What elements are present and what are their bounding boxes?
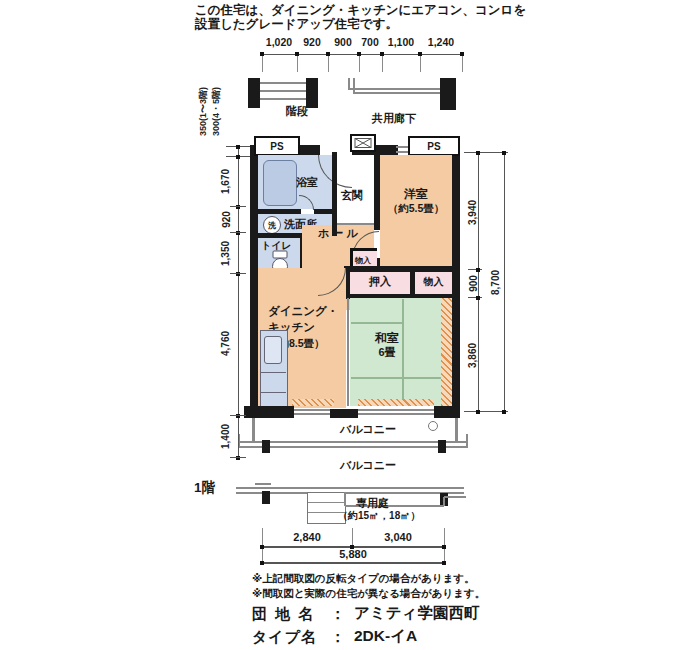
stair-line: [260, 90, 306, 92]
header-line1: この住宅は、ダイニング・キッチンにエアコン、コンロを: [195, 3, 526, 17]
dim-tick: [476, 410, 480, 414]
dk-label-line1: ダイニング・: [268, 303, 338, 319]
ground-line: [236, 492, 464, 494]
note-2: ※間取図と実際の住宅が異なる場合があります。: [252, 587, 485, 599]
ps-box-right: PS: [408, 136, 460, 156]
dim-ext-line: [297, 56, 298, 72]
washitsu-label-group: 和室 6畳: [364, 332, 410, 358]
dim-tick: [502, 151, 506, 155]
dim-top-5: 1,100: [381, 36, 421, 48]
garden-line: [443, 497, 445, 506]
washitsu-label: 和室: [375, 332, 399, 346]
dim-tick: [442, 561, 446, 565]
entrance-label: 玄関: [341, 189, 363, 202]
dk-washitsu-divider: [347, 298, 349, 406]
dim-left-upper-a: 350(1〜3階): [197, 80, 211, 142]
balcony-1f-label: バルコニー: [340, 459, 396, 472]
window-line: [294, 413, 330, 415]
bathtub-icon: [263, 160, 297, 206]
dim-tick: [502, 410, 506, 414]
dim-stub: [230, 232, 246, 233]
dim-chain-line: [238, 147, 239, 458]
first-floor-label: 1階: [194, 480, 215, 496]
dim-tick: [476, 296, 480, 300]
balcony-rail-end: [466, 434, 468, 447]
type-name-value: 2DK-イA: [354, 627, 417, 645]
ground-bump: [255, 483, 271, 485]
ground-line: [236, 487, 464, 489]
dim-ext-line: [420, 56, 421, 72]
dim-tick: [236, 145, 240, 149]
washitsu-size-label: 6畳: [378, 346, 395, 359]
wall-bottom: [434, 406, 460, 418]
garden-size-label: （約15㎡，18㎡）: [338, 510, 420, 522]
balcony-rail: [238, 441, 468, 443]
balcony-rail: [238, 446, 468, 448]
estate-name-value: アミティ学園西町: [354, 604, 479, 622]
corridor-line: [348, 88, 454, 90]
entrance-step-line: [337, 223, 374, 225]
garden-label: 専用庭: [356, 497, 389, 510]
sill-hatch: [358, 399, 434, 406]
western-label: 洋室: [404, 188, 428, 202]
corridor-line: [353, 78, 355, 93]
estate-colon: ：: [330, 605, 345, 622]
dim-top-6: 1,240: [421, 36, 461, 48]
rail-post: [262, 440, 270, 453]
dim-left-upper-b: 300(4・5階): [210, 80, 224, 142]
header-description: この住宅は、ダイニング・キッチンにエアコン、コンロを 設置したグレードアップ住宅…: [195, 3, 526, 32]
dim-ext-line: [328, 56, 329, 72]
engawa-hatch-strip: [441, 298, 452, 406]
dim-left-4: 4,760: [219, 322, 233, 364]
counter-line: [260, 372, 286, 373]
stair-line: [260, 82, 306, 84]
garden-line: [444, 496, 466, 498]
type-colon: ：: [330, 628, 345, 645]
dim-bottom-2: 3,040: [376, 531, 420, 544]
dim-chain-line: [504, 153, 505, 412]
window-line: [294, 409, 330, 411]
wall-partition: [374, 152, 380, 230]
wall-pillar: [440, 78, 456, 110]
dim-line: [262, 562, 445, 564]
wall-pillar: [306, 78, 318, 108]
washer-icon: 洗: [263, 216, 281, 234]
drain-icon: [428, 421, 438, 431]
closet-small-label: 物入: [355, 256, 371, 265]
western-size-label: （約5.5畳）: [388, 202, 445, 214]
tatami-line: [351, 322, 403, 324]
tatami-line: [351, 377, 441, 379]
step-line: [308, 502, 345, 503]
dim-tick: [442, 545, 446, 549]
wall-bottom: [244, 406, 294, 418]
ps-right-label: PS: [427, 141, 440, 152]
dim-tick: [260, 545, 264, 549]
stair-line: [260, 98, 306, 100]
dim-ext-line: [382, 56, 383, 72]
ps-left-label: PS: [270, 141, 283, 152]
header-line2: 設置したグレードアップ住宅です。: [195, 17, 526, 31]
dim-stub: [230, 273, 246, 274]
dim-stub: [230, 415, 246, 416]
window-line: [358, 409, 434, 411]
dim-right-1: 3,940: [466, 190, 480, 234]
wall-pillar: [248, 78, 260, 108]
dim-line: [262, 54, 462, 55]
dim-ext-line: [262, 56, 263, 72]
western-label-group: 洋室 （約5.5畳）: [382, 188, 450, 214]
ps-box-left: PS: [254, 136, 300, 156]
dim-tick: [260, 561, 264, 565]
dim-stub: [230, 457, 246, 458]
hall-label: ホール: [318, 227, 361, 240]
dim-ext-line: [359, 56, 360, 72]
meter-box-icon: [350, 134, 376, 152]
wall-bottom: [330, 409, 358, 418]
dim-tick: [236, 155, 240, 159]
counter-line: [260, 392, 286, 393]
garden-line: [344, 492, 346, 506]
corridor-line: [353, 92, 454, 94]
oshiire-label: 押入: [350, 275, 410, 288]
dim-right-3: 3,860: [466, 333, 480, 377]
note-1: ※上記間取図の反転タイプの場合があります。: [252, 572, 475, 584]
dim-left-5: 1,400: [219, 420, 233, 452]
type-name-label: タイプ名: [252, 628, 317, 645]
dim-bottom-1: 2,840: [285, 531, 329, 544]
dim-left-1: 1,670: [219, 160, 233, 202]
bath-label: 浴室: [296, 176, 318, 189]
wall-right: [452, 145, 460, 413]
dim-right-total: 8,700: [489, 260, 503, 304]
balcony-side: [455, 418, 458, 442]
dim-left-2: 920: [219, 207, 233, 231]
balcony-side: [252, 418, 255, 442]
corridor-label: 共用廊下: [372, 112, 416, 125]
dim-tick: [476, 151, 480, 155]
stairs-label: 階段: [286, 105, 308, 118]
window-line: [358, 413, 434, 415]
dim-bottom-total: 5,880: [331, 548, 375, 561]
floorplan-page: この住宅は、ダイニング・キッチンにエアコン、コンロを 設置したグレードアップ住宅…: [0, 0, 700, 650]
balcony-label: バルコニー: [340, 423, 396, 436]
estate-name-label: 団 地 名: [252, 605, 315, 622]
wall-partition: [332, 152, 337, 236]
dim-ext-line: [462, 56, 463, 72]
kitchen-sink-icon: [264, 336, 282, 364]
sill-hatch: [292, 399, 334, 406]
dim-left-3: 1,350: [219, 237, 233, 269]
rail-post: [438, 440, 446, 453]
wall-left: [250, 145, 258, 413]
dim-right-2: 900: [466, 270, 480, 296]
ground-post: [262, 491, 270, 504]
monoire-label: 物入: [415, 276, 452, 288]
